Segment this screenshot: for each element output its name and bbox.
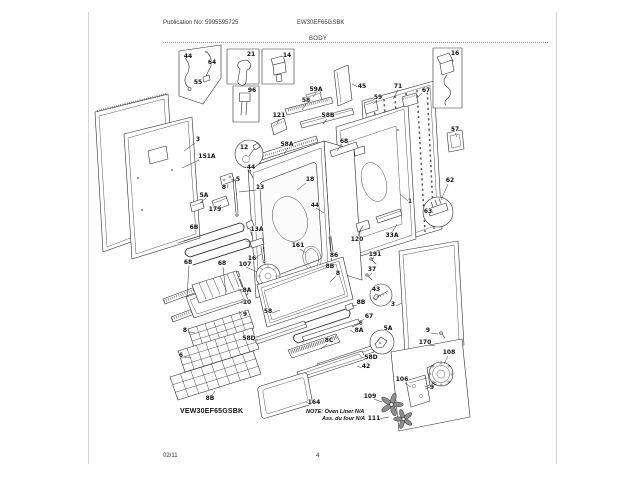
part-callout: 58 xyxy=(264,308,272,315)
exploded-diagram: 44645521149616677145595759A5858B12131244… xyxy=(0,0,640,480)
part-callout: 9 xyxy=(430,384,434,391)
part-callout: 111 xyxy=(368,415,381,422)
diagram-note-line2: Ass. du four N/A xyxy=(322,417,365,423)
part-callout: 3 xyxy=(391,301,395,308)
part-callout: 8B xyxy=(326,263,335,270)
part-callout: 63 xyxy=(424,208,432,215)
part-callout: 71 xyxy=(394,83,402,90)
part-callout: 6B xyxy=(190,224,199,231)
part-callout: 8A xyxy=(355,327,364,334)
part-callout: 58D xyxy=(242,335,255,342)
part-callout: 6 xyxy=(179,352,183,359)
part-callout: 21 xyxy=(247,51,255,58)
part-callout: 13A xyxy=(251,226,264,233)
part-callout: 170 xyxy=(419,339,432,346)
part-callout: 107 xyxy=(239,261,252,268)
part-callout: 42 xyxy=(362,363,370,370)
part-callout: 55 xyxy=(194,79,202,86)
part-callout: 8C xyxy=(325,337,334,344)
part-callout: 43 xyxy=(372,286,380,293)
diagram-note-line1: NOTE: Oven Liner N/A xyxy=(306,410,364,416)
part-callout: 161 xyxy=(292,242,305,249)
part-callout: 62 xyxy=(446,177,454,184)
part-callout: 57 xyxy=(451,126,459,133)
part-callout: 58 xyxy=(302,97,310,104)
part-callout: 33A xyxy=(386,232,399,239)
part-callout: 151A xyxy=(198,153,216,160)
part-callout: 8 xyxy=(222,184,226,191)
part-callout: 45 xyxy=(358,83,366,90)
part-callout: 5A xyxy=(200,192,209,199)
part-callout: 44 xyxy=(184,53,192,60)
part-callout: 179 xyxy=(209,206,222,213)
part-callout: 8 xyxy=(183,327,187,334)
part-callout: 44 xyxy=(247,164,255,171)
footer-date: 02/11 xyxy=(163,453,178,459)
part-callout: 5A xyxy=(384,325,393,332)
part-callout: 1 xyxy=(408,198,412,205)
part-callout: 8B xyxy=(206,395,215,402)
part-callout: 86 xyxy=(330,252,338,259)
part-callout: 58B xyxy=(322,112,335,119)
part-callout: 8 xyxy=(336,270,340,277)
part-callout: 12 xyxy=(240,144,248,151)
part-callout: 106 xyxy=(396,376,409,383)
part-callout: 3 xyxy=(196,136,200,143)
part-callout: 68 xyxy=(218,260,226,267)
part-callout: 8A xyxy=(243,287,252,294)
part-callout: 68 xyxy=(340,138,348,145)
part-callout: 191 xyxy=(369,251,382,258)
part-callout: 68 xyxy=(184,259,192,266)
part-callout: 10 xyxy=(243,299,251,306)
part-callout: 96 xyxy=(248,87,256,94)
part-callout: 58A xyxy=(281,141,294,148)
part-callout: 67 xyxy=(365,313,373,320)
part-callout: 59 xyxy=(374,94,382,101)
part-callout: 5 xyxy=(236,176,240,183)
part-callout: 58D xyxy=(364,354,377,361)
part-callout: 164 xyxy=(308,399,321,406)
part-callout: 44 xyxy=(311,202,319,209)
diagram-model-label: VEW30EF65GSBK xyxy=(180,408,243,415)
part-callout: 108 xyxy=(443,349,456,356)
part-callout: 16 xyxy=(451,50,459,57)
part-callout: 120 xyxy=(351,236,364,243)
parts-catalog-page: Publication No: 5995595725 EW30EF65GSBK … xyxy=(0,0,640,480)
part-callout: 64 xyxy=(208,59,216,66)
part-callout: 59A xyxy=(310,86,323,93)
footer-page-number: 4 xyxy=(316,453,319,459)
part-callout: 8B xyxy=(357,299,366,306)
part-callout: 109 xyxy=(364,393,377,400)
part-callout: 121 xyxy=(273,112,286,119)
part-callout: 14 xyxy=(283,52,291,59)
part-callout: 9 xyxy=(243,311,247,318)
part-callout: 67 xyxy=(422,87,430,94)
part-callout: 18 xyxy=(306,176,314,183)
part-callout: 13 xyxy=(256,184,264,191)
part-callout: 9 xyxy=(426,327,430,334)
part-callout: 37 xyxy=(368,266,376,273)
